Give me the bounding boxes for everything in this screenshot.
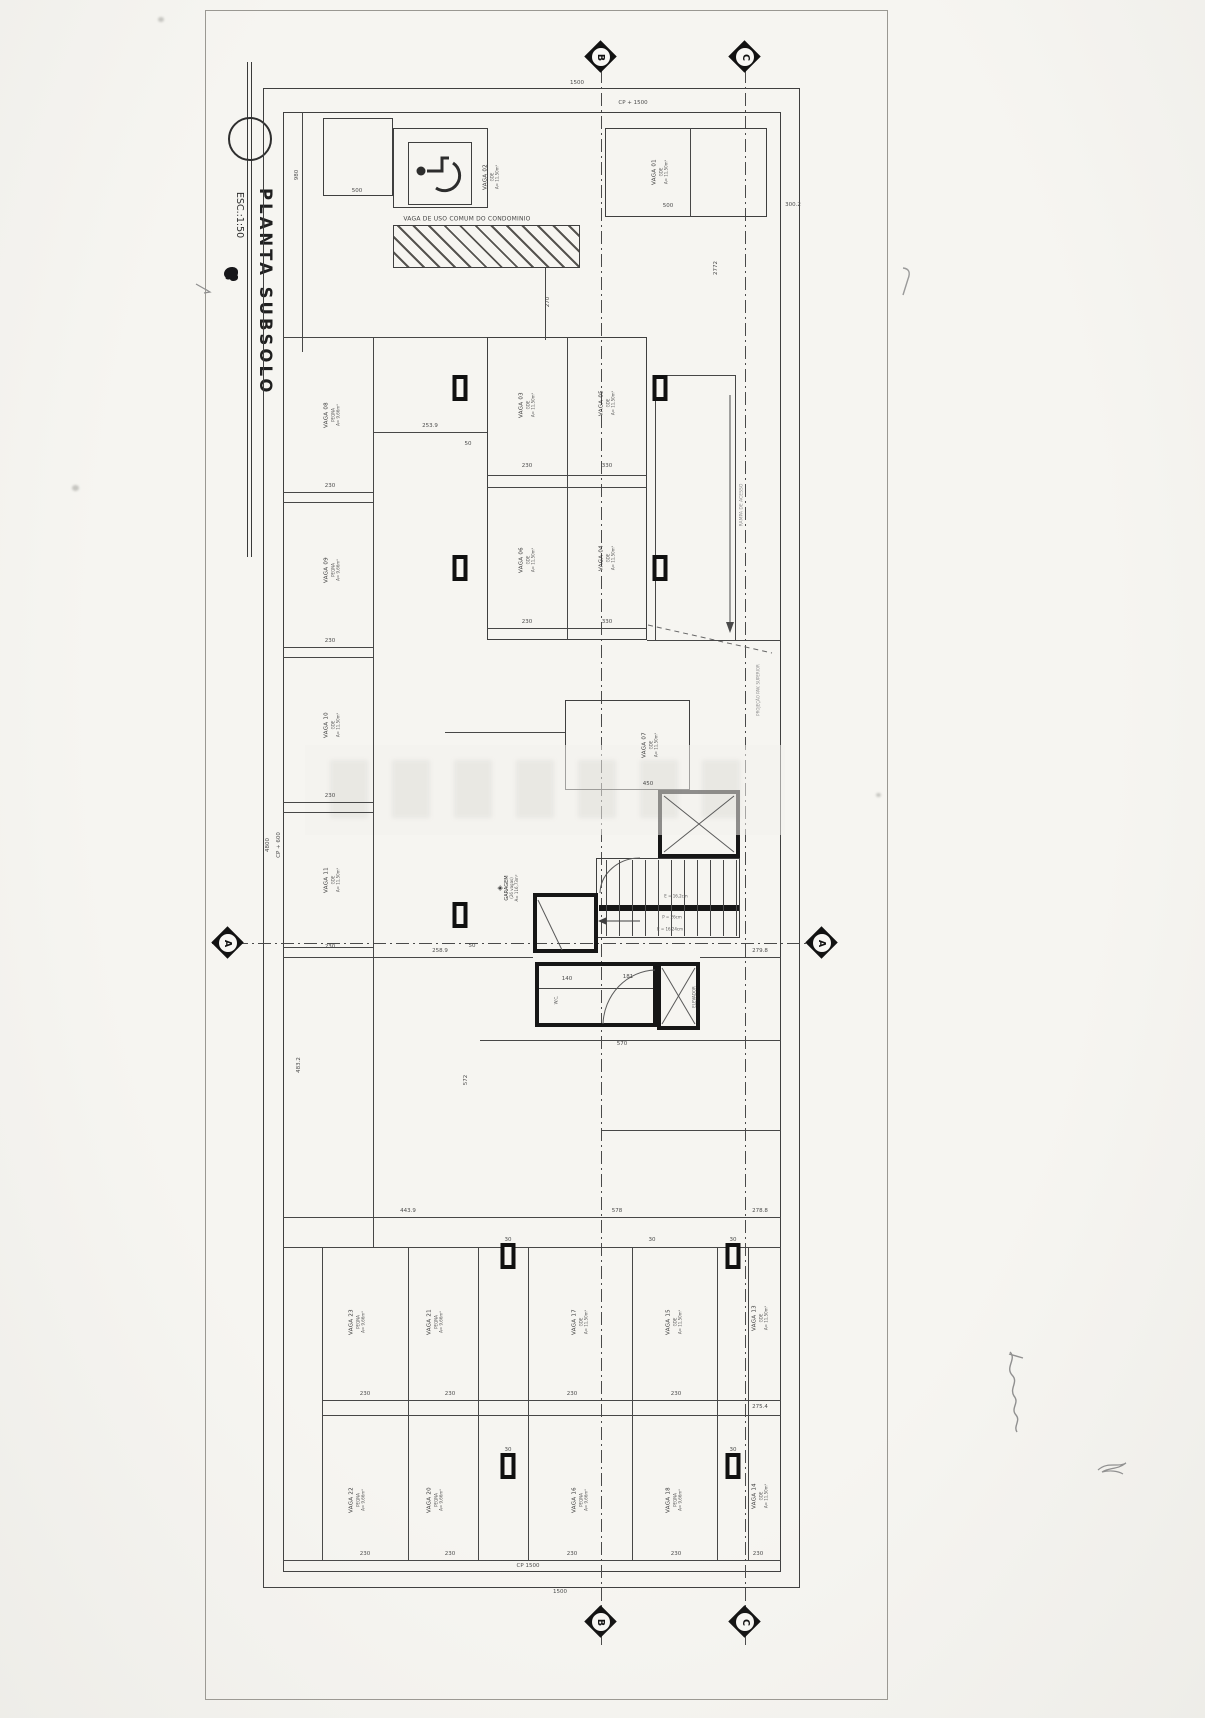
structural-column	[653, 555, 668, 581]
room-b-partition	[539, 988, 653, 989]
parking-stall-label: VAGA 14GDEA= 11,50m²	[752, 1463, 769, 1529]
dimension-label: 1500	[570, 80, 584, 86]
dimension-label: 4800	[265, 838, 271, 852]
stall-label-line: A= 11,50m²	[610, 370, 615, 436]
dimension-label: 230	[567, 1391, 578, 1397]
dimension-label: 443.9	[400, 1208, 416, 1214]
plan-line	[748, 1247, 749, 1560]
stall-label-line: VAGA 14	[752, 1463, 759, 1529]
stall-label-line: A= 11,50m²	[610, 525, 615, 591]
stair-tread	[632, 860, 633, 936]
stall-label-line: A= 9,66m²	[677, 1467, 682, 1533]
stair-tread	[736, 860, 737, 936]
scan-smudge	[72, 485, 79, 491]
parking-stall-label: VAGA 06GDEA= 11,50m²	[519, 527, 536, 593]
ramp-note: RAMPA DE ACESSO	[740, 484, 745, 527]
dimension-label: 30	[649, 1237, 656, 1243]
stall-label-line: VAGA 23	[349, 1289, 356, 1355]
dimension-label: 230	[522, 619, 533, 625]
parking-stall-label: VAGA 23PEQNAA= 9,66m²	[349, 1289, 366, 1355]
parking-stall-label: VAGA 08PEQNAA= 9,66m²	[324, 382, 341, 448]
section-marker-b-top: B	[586, 42, 616, 72]
stall-label-line: A= 11,50m²	[335, 692, 340, 758]
stair-note: E = 16,24cm	[657, 927, 683, 932]
dimension-label: 483.2	[296, 1057, 302, 1073]
stall-label-line: A= 9,66m²	[438, 1467, 443, 1533]
structural-column	[726, 1243, 741, 1269]
stall-label-line: VAGA 04	[599, 525, 606, 591]
stall-outline	[605, 128, 767, 217]
stall-label-line: A= 11,50m²	[663, 139, 668, 205]
stair-tread	[710, 860, 711, 936]
stair-tread	[697, 860, 698, 936]
handwritten-scribble	[903, 268, 909, 295]
dimension-label: 300.2	[785, 202, 801, 208]
dimension-label: 258.9	[432, 948, 448, 954]
dimension-label: 230	[445, 1391, 456, 1397]
dimension-label: CP + 600	[276, 832, 282, 858]
stall-label-line: VAGA 17	[572, 1289, 579, 1355]
stall-label-line: VAGA 07	[642, 712, 649, 778]
stall-label-line: A= 11,50m²	[583, 1289, 588, 1355]
stall-label-line: VAGA 10	[324, 692, 331, 758]
dimension-label: 50	[469, 943, 476, 949]
plan-line	[373, 337, 374, 1247]
garagem-diamond-icon: ◈	[496, 853, 504, 923]
stall-label-line: A= 11,50m²	[763, 1285, 768, 1351]
dimension-label: 230	[671, 1391, 682, 1397]
stall-label-line: A= 9,66m²	[360, 1467, 365, 1533]
dimension-label: 230	[753, 1551, 764, 1557]
stall-label-line: A= 11,50m²	[763, 1463, 768, 1529]
stall-label-line: VAGA 03	[519, 372, 526, 438]
parking-stall-label: VAGA 17GDEA= 11,50m²	[572, 1289, 589, 1355]
parking-stall-label: VAGA 04GDEA= 11,50m²	[599, 525, 616, 591]
plan-line	[283, 647, 373, 648]
core-room-a	[533, 893, 598, 953]
plan-line	[283, 1560, 781, 1561]
projection-note: PROJEÇÃO PAV. SUPERIOR	[756, 664, 761, 716]
stall-label-line: A= 9,66m²	[335, 537, 340, 603]
dimension-label: 570	[617, 1041, 628, 1047]
centerline-a	[212, 943, 832, 944]
plan-line	[408, 1247, 409, 1560]
common-use-stall-label: VAGA DE USO COMUM DO CONDOMINIO	[403, 216, 530, 223]
stair-tread	[658, 860, 659, 936]
watermark-ghost	[330, 760, 750, 818]
stair-tread	[606, 860, 607, 936]
dimension-label: 330	[602, 463, 613, 469]
stall-label-line: VAGA 21	[427, 1289, 434, 1355]
stall-label-line: VAGA 18	[666, 1467, 673, 1533]
plan-line	[700, 957, 781, 958]
dimension-label: 230	[567, 1551, 578, 1557]
dimension-label: 230	[325, 483, 336, 489]
stall-label-line: A= 11,50m²	[677, 1289, 682, 1355]
section-marker-c-top: C	[730, 42, 760, 72]
elevator-label: ELEVADOR	[692, 986, 697, 1008]
parking-stall-label: VAGA 05GDEA= 11,50m²	[599, 370, 616, 436]
dimension-label: 980	[294, 170, 300, 181]
stair-tread	[723, 860, 724, 936]
plan-line	[283, 957, 533, 958]
plan-line	[283, 657, 373, 658]
dimension-label: 270	[545, 297, 551, 308]
dimension-label: 572	[463, 1075, 469, 1086]
stall-label-line: VAGA 15	[666, 1289, 673, 1355]
structural-column	[501, 1243, 516, 1269]
plan-line	[283, 802, 373, 803]
dimension-label: 450	[643, 781, 654, 787]
plan-line	[322, 1415, 781, 1416]
structural-column	[726, 1453, 741, 1479]
structural-column	[453, 555, 468, 581]
parking-stall-label: VAGA 15GDEA= 11,50m²	[666, 1289, 683, 1355]
accessible-symbol-box	[408, 142, 472, 205]
parking-stall-label: VAGA 20PEQNAA= 9,66m²	[427, 1467, 444, 1533]
dimension-label: 230	[360, 1391, 371, 1397]
dimension-label: 230	[522, 463, 533, 469]
plan-line	[601, 1130, 781, 1131]
stall-label-line: VAGA 11	[324, 847, 331, 913]
dimension-label: 230	[360, 1551, 371, 1557]
plan-line	[735, 375, 736, 640]
dimension-label: 278.8	[752, 1208, 768, 1214]
dimension-label: 230	[671, 1551, 682, 1557]
stair-note: P = 26cm	[662, 915, 682, 920]
stall-label-line: VAGA 20	[427, 1467, 434, 1533]
dimension-label: CP 1500	[517, 1563, 540, 1569]
stall-label-line: A= 11,50m²	[494, 144, 499, 210]
dimension-label: 279.8	[752, 948, 768, 954]
plan-line	[283, 492, 373, 493]
parking-stall-label: VAGA 11GDEA= 11,50m²	[324, 847, 341, 913]
dimension-label: 140	[562, 976, 573, 982]
plan-line	[283, 812, 373, 813]
stall-label-line: VAGA 09	[324, 537, 331, 603]
plan-line	[717, 1247, 718, 1560]
dimension-label: 230	[325, 944, 336, 950]
stair-tread	[645, 860, 646, 936]
dimension-label: CP + 1500	[618, 100, 647, 106]
parking-stall-label: VAGA 16PEQNAA= 9,66m²	[572, 1467, 589, 1533]
plan-line	[480, 1040, 781, 1041]
scan-smudge	[876, 793, 881, 797]
dimension-label: 230	[325, 638, 336, 644]
dimension-label: 30	[505, 1237, 512, 1243]
dimension-label: 30	[730, 1447, 737, 1453]
dimension-label: 50	[465, 441, 472, 447]
section-marker-a-right: A	[807, 928, 837, 958]
structural-column	[453, 902, 468, 928]
scan-smudge	[158, 17, 164, 22]
dimension-label: 2772	[713, 261, 719, 275]
parking-stall-label: VAGA 03GDEA= 11,50m²	[519, 372, 536, 438]
stall-label-line: VAGA 16	[572, 1467, 579, 1533]
core-room-b	[535, 962, 657, 1027]
plan-line	[322, 1247, 323, 1560]
stall-label-line: VAGA 05	[599, 370, 606, 436]
parking-stall-label: VAGA 01GDEA= 11,50m²	[652, 139, 669, 205]
stall-label-line: A= 9,66m²	[360, 1289, 365, 1355]
stair-tread	[619, 860, 620, 936]
garage-area: A= 116,73m²	[515, 853, 520, 923]
stall-label-line: VAGA 08	[324, 382, 331, 448]
plan-line	[445, 732, 565, 733]
section-marker-a-left: A	[213, 928, 243, 958]
stall-label-line: A= 9,66m²	[335, 382, 340, 448]
parking-stall-label: VAGA 18PEQNAA= 9,66m²	[666, 1467, 683, 1533]
stall-label-line: VAGA 13	[752, 1285, 759, 1351]
section-marker-c-bottom: C	[730, 1607, 760, 1637]
plan-line	[283, 337, 487, 338]
parking-stall-label: VAGA 02GDEA= 11,50m²	[483, 144, 500, 210]
stall-label-line: A= 9,66m²	[583, 1467, 588, 1533]
section-marker-b-bottom: B	[586, 1607, 616, 1637]
stall-label-line: A= 11,50m²	[653, 712, 658, 778]
dimension-label: 1500	[553, 1589, 567, 1595]
plan-line	[322, 1400, 781, 1401]
dimension-label: 230	[325, 793, 336, 799]
dimension-label: 230	[445, 1551, 456, 1557]
plan-line	[283, 502, 373, 503]
plan-line	[283, 1247, 781, 1248]
parking-stall-label: VAGA 10GDEA= 11,50m²	[324, 692, 341, 758]
parking-stall-label: VAGA 13GDEA= 11,50m²	[752, 1285, 769, 1351]
plan-line	[655, 375, 656, 640]
stall-divider	[690, 128, 691, 217]
dimension-label: 253.9	[422, 423, 438, 429]
stall-label-line: A= 11,50m²	[530, 372, 535, 438]
stall-label-line: VAGA 22	[349, 1467, 356, 1533]
plan-line	[302, 112, 303, 352]
stall-label-line: A= 11,50m²	[335, 847, 340, 913]
dimension-label: 500	[352, 188, 363, 194]
dimension-label: 578	[612, 1208, 623, 1214]
plan-line	[567, 337, 568, 640]
structural-column	[653, 375, 668, 401]
room-label: W.C.	[554, 996, 559, 1005]
dimension-label: 275.4	[752, 1404, 768, 1410]
common-use-stall-hatch	[393, 225, 580, 268]
handwritten-scribble	[1098, 1463, 1126, 1474]
stair-handrail	[599, 905, 739, 911]
structural-column	[501, 1453, 516, 1479]
stair-note: E = 16,2cm	[664, 894, 687, 899]
structural-column	[453, 375, 468, 401]
parking-stall-label: VAGA 09PEQNAA= 9,66m²	[324, 537, 341, 603]
dimension-label: 30	[730, 1237, 737, 1243]
dimension-label: 181	[623, 974, 634, 980]
centerline-c	[745, 70, 746, 1645]
stall-outline	[323, 118, 393, 196]
scanned-floor-plan-sheet: PLANTA SUBSOLO ESC.:1:50 VAGA DE USO COM…	[0, 0, 1205, 1718]
parking-stall-label: VAGA 21PEQNAA= 9,66m²	[427, 1289, 444, 1355]
stall-label-line: A= 9,66m²	[438, 1289, 443, 1355]
handwritten-scribble	[1009, 1352, 1023, 1432]
dimension-label: 330	[602, 619, 613, 625]
parking-stall-label: VAGA 22PEQNAA= 9,66m²	[349, 1467, 366, 1533]
plan-line	[528, 1247, 529, 1560]
plan-line	[283, 1217, 781, 1218]
plan-line	[373, 432, 487, 433]
stall-label-line: VAGA 02	[483, 144, 490, 210]
plan-line	[647, 640, 781, 641]
dimension-label: 30	[505, 1447, 512, 1453]
garage-annotation: ◈ GARAGEM (26 vagas) A= 116,73m²	[496, 853, 520, 923]
stall-label-line: A= 11,50m²	[530, 527, 535, 593]
plan-line	[632, 1247, 633, 1560]
plan-line	[478, 1247, 479, 1560]
stall-label-line: VAGA 06	[519, 527, 526, 593]
stall-label-line: VAGA 01	[652, 139, 659, 205]
parking-stall-label: VAGA 07GDEA= 11,50m²	[642, 712, 659, 778]
